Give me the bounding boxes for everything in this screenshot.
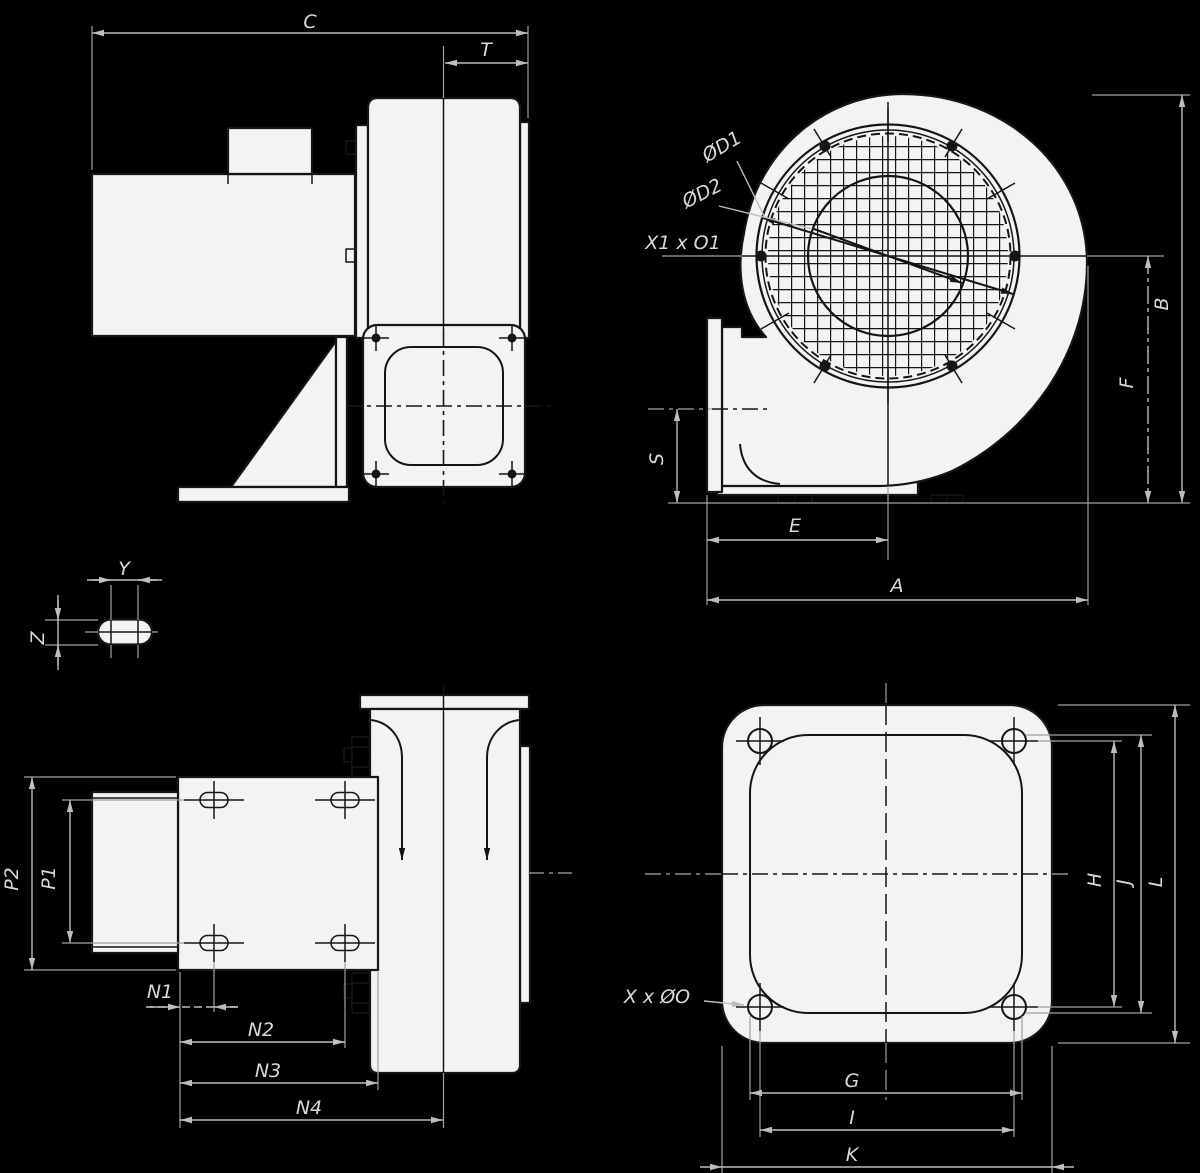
dim-label-k: K — [846, 1144, 860, 1166]
dim-label-p1: P1 — [38, 866, 60, 890]
dim-label-c: C — [303, 11, 317, 33]
dim-label-e: E — [789, 515, 801, 537]
dim-label-xo: X x ØO — [623, 986, 690, 1008]
outlet-flange-view: X x ØO H J L G I K — [623, 683, 1190, 1173]
slot-detail-view: Y Z — [27, 558, 162, 670]
bracket-lower — [352, 973, 370, 1013]
dim-label-x1o1: X1 x O1 — [644, 232, 720, 254]
dim-label-d2: ØD2 — [678, 174, 726, 213]
mounting-plate — [178, 777, 378, 970]
motor-flange-strip-left — [356, 125, 368, 338]
dim-label-h: H — [1084, 873, 1106, 887]
duct-body — [370, 709, 520, 1073]
casing-strip-right — [520, 122, 529, 338]
casing-edge-strip — [520, 746, 530, 1003]
discharge-flange-plate — [707, 318, 722, 492]
dim-label-f: F — [1116, 376, 1138, 388]
dim-label-n1: N1 — [147, 981, 173, 1003]
dim-label-l: L — [1145, 877, 1167, 888]
motor-body — [92, 174, 355, 336]
dim-label-j: J — [1113, 879, 1135, 889]
support-gusset — [231, 341, 336, 487]
dim-label-t: T — [480, 39, 493, 61]
dim-label-s: S — [646, 453, 668, 465]
dim-label-a: A — [889, 575, 904, 597]
front-view: ØD1 ØD2 X1 x O1 S E A B F — [644, 94, 1190, 605]
side-view: C T — [92, 11, 556, 508]
dim-label-n2: N2 — [248, 1019, 274, 1041]
bottom-side-view: P2 P1 N1 N2 N3 N4 — [1, 685, 572, 1128]
duct-flange — [360, 695, 529, 709]
dim-label-b: B — [1151, 297, 1173, 310]
dim-label-g: G — [845, 1070, 860, 1092]
dim-label-i: I — [849, 1107, 855, 1129]
dim-label-n4: N4 — [296, 1097, 322, 1119]
bracket-upper — [352, 737, 370, 777]
dim-label-p2: P2 — [1, 867, 23, 891]
base-plate-side — [178, 487, 349, 502]
fan-technical-drawing: C T — [0, 0, 1200, 1173]
dim-label-n3: N3 — [255, 1060, 281, 1082]
support-plate — [336, 337, 347, 487]
dim-label-y: Y — [118, 558, 131, 580]
terminal-box — [228, 128, 312, 174]
fan-technical-drawing-page: C T — [0, 0, 1200, 1173]
dim-label-d1: ØD1 — [698, 127, 746, 168]
dim-label-z: Z — [27, 631, 49, 646]
motor-end — [92, 792, 178, 953]
flange-bolt-top — [346, 141, 356, 154]
